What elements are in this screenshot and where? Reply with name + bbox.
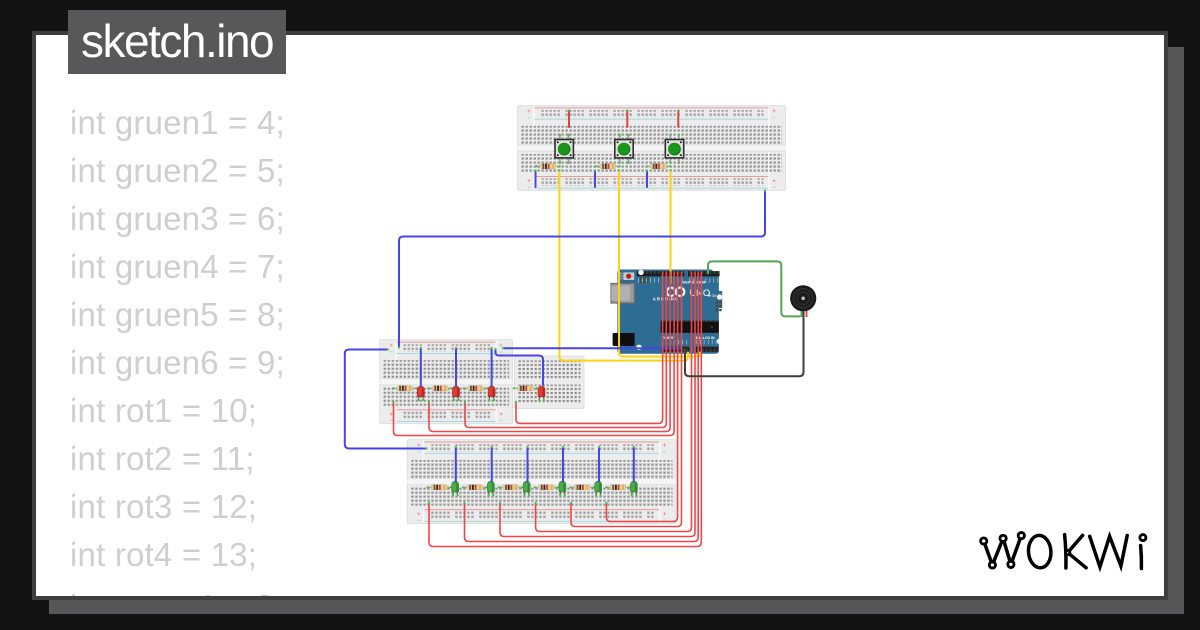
svg-text:POWER: POWER (662, 336, 675, 340)
svg-text:UNO: UNO (689, 288, 710, 299)
svg-text:ON: ON (712, 294, 717, 298)
